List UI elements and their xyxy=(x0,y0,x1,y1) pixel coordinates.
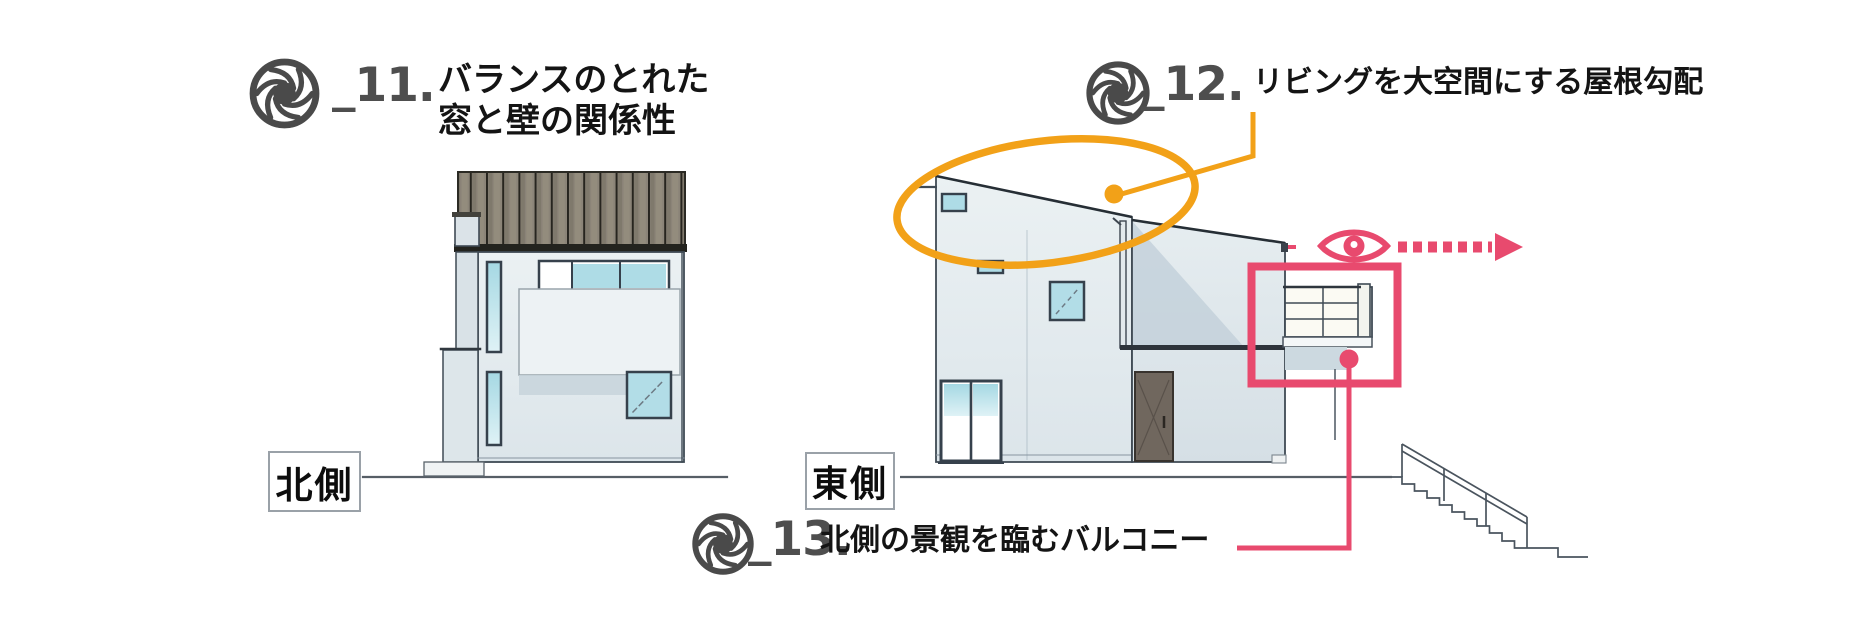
annotation-11-line2: 窓と壁の関係性 xyxy=(438,101,709,142)
left-wall-strip xyxy=(456,252,478,350)
under-balcony-shadow xyxy=(1285,347,1347,370)
slit-window-lower xyxy=(487,372,501,445)
steps xyxy=(1392,477,1588,557)
roof-eave-bar xyxy=(454,244,687,252)
arrow-head xyxy=(1495,233,1523,261)
annotation-11-text: バランスのとれた 窓と壁の関係性 xyxy=(438,60,709,142)
east-elevation-label: 東側 xyxy=(805,452,895,510)
aperture-icon xyxy=(247,56,322,131)
dotted-arrow-right-icon xyxy=(1398,233,1523,261)
roof-end-cap xyxy=(1281,243,1288,252)
metal-roof xyxy=(458,172,685,246)
stairs-drawing xyxy=(1392,444,1588,557)
parapet-cap xyxy=(452,212,481,217)
balcony xyxy=(1272,284,1372,463)
annotation-12-number: _12. xyxy=(1141,61,1244,108)
eye-highlight xyxy=(1351,241,1358,248)
downpipe xyxy=(1120,221,1126,348)
orange-connector-dot xyxy=(1105,185,1124,204)
balcony-post xyxy=(1358,284,1370,337)
aperture-icon xyxy=(690,511,756,577)
square-window xyxy=(1050,282,1084,320)
annotation-11-number: _11. xyxy=(332,62,435,109)
balcony-wall-panel xyxy=(519,289,680,375)
vent-window-top xyxy=(942,194,966,211)
slit-window-upper xyxy=(487,262,501,352)
panel-shadow xyxy=(519,375,629,395)
porch-step xyxy=(424,462,484,476)
eye-icon xyxy=(1288,233,1387,260)
architectural-elevation-infographic: _11. バランスのとれた 窓と壁の関係性 _12. リビングを大空間にする屋根… xyxy=(0,0,1860,640)
first-floor-roof-edge xyxy=(1120,345,1288,350)
pink-connector-dot xyxy=(1340,350,1359,369)
east-elevation-drawing xyxy=(900,176,1588,557)
parapet xyxy=(455,215,479,246)
annotation-11-line1: バランスのとれた xyxy=(438,60,709,101)
left-wall-block xyxy=(443,350,478,462)
balcony-slab xyxy=(1283,337,1372,347)
annotation-12-text: リビングを大空間にする屋根勾配 xyxy=(1253,66,1703,100)
annotation-13-text: 北側の景観を臨むバルコニー xyxy=(820,524,1209,558)
north-elevation-label: 北側 xyxy=(268,451,361,512)
north-elevation-drawing xyxy=(363,172,727,477)
